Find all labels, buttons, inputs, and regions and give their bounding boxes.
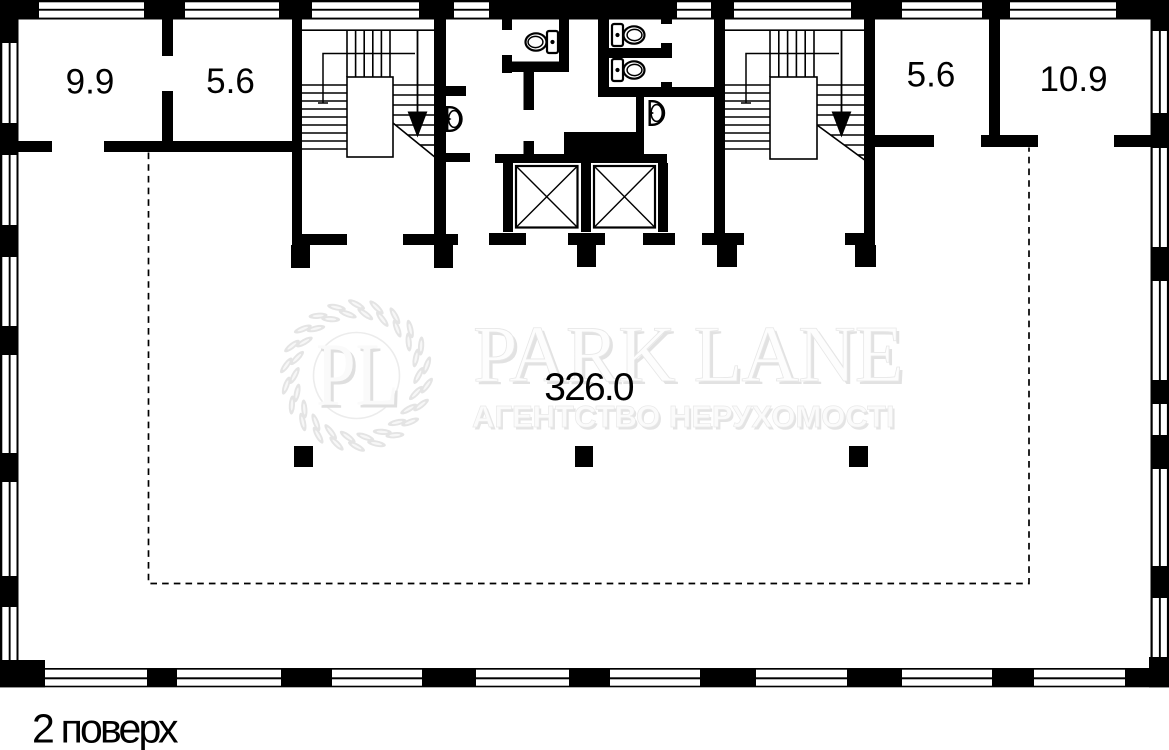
svg-text:2 поверх: 2 поверх <box>32 706 179 750</box>
svg-text:10.9: 10.9 <box>1039 60 1107 99</box>
svg-text:326.0: 326.0 <box>544 366 634 409</box>
svg-text:5.6: 5.6 <box>206 62 255 101</box>
svg-text:9.9: 9.9 <box>66 62 115 101</box>
svg-text:PL: PL <box>316 326 399 425</box>
svg-text:PARK LANE: PARK LANE <box>473 311 902 399</box>
svg-text:АГЕНТСТВО НЕРУХОМОСТІ: АГЕНТСТВО НЕРУХОМОСТІ <box>472 399 895 434</box>
svg-text:5.6: 5.6 <box>907 56 956 95</box>
